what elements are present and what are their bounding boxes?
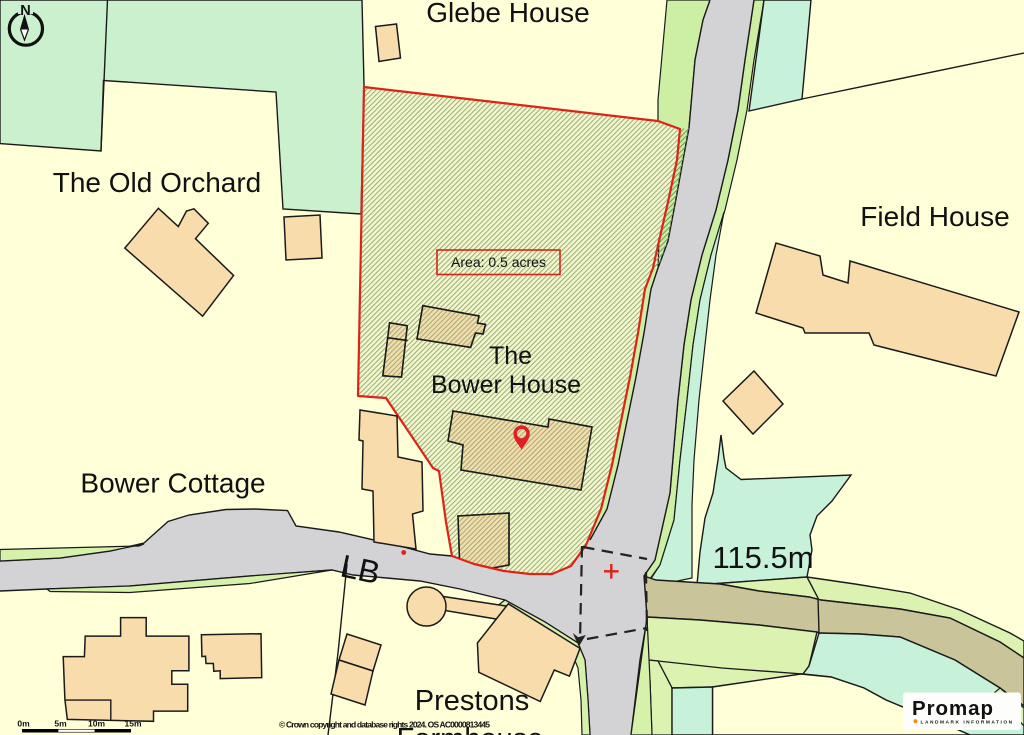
svg-text:LANDMARK INFORMATION: LANDMARK INFORMATION [921, 720, 1013, 726]
svg-text:Bower House: Bower House [431, 371, 581, 399]
svg-text:The Old Orchard: The Old Orchard [53, 167, 262, 198]
svg-text:115.5m: 115.5m [712, 540, 813, 575]
svg-text:© Crown copyright and database: © Crown copyright and database rights 20… [279, 720, 490, 730]
svg-text:N: N [20, 3, 30, 19]
svg-text:Area: 0.5 acres: Area: 0.5 acres [451, 254, 546, 270]
svg-text:Field House: Field House [860, 201, 1009, 232]
svg-text:10m: 10m [88, 719, 105, 729]
svg-text:0m: 0m [17, 719, 30, 729]
svg-text:Glebe House: Glebe House [426, 0, 589, 28]
svg-text:15m: 15m [124, 719, 141, 729]
svg-text:5m: 5m [54, 719, 67, 729]
svg-text:Prestons: Prestons [415, 685, 529, 717]
svg-text:The: The [489, 342, 532, 370]
svg-text:Bower Cottage: Bower Cottage [80, 468, 265, 499]
svg-text:Promap: Promap [912, 697, 993, 720]
